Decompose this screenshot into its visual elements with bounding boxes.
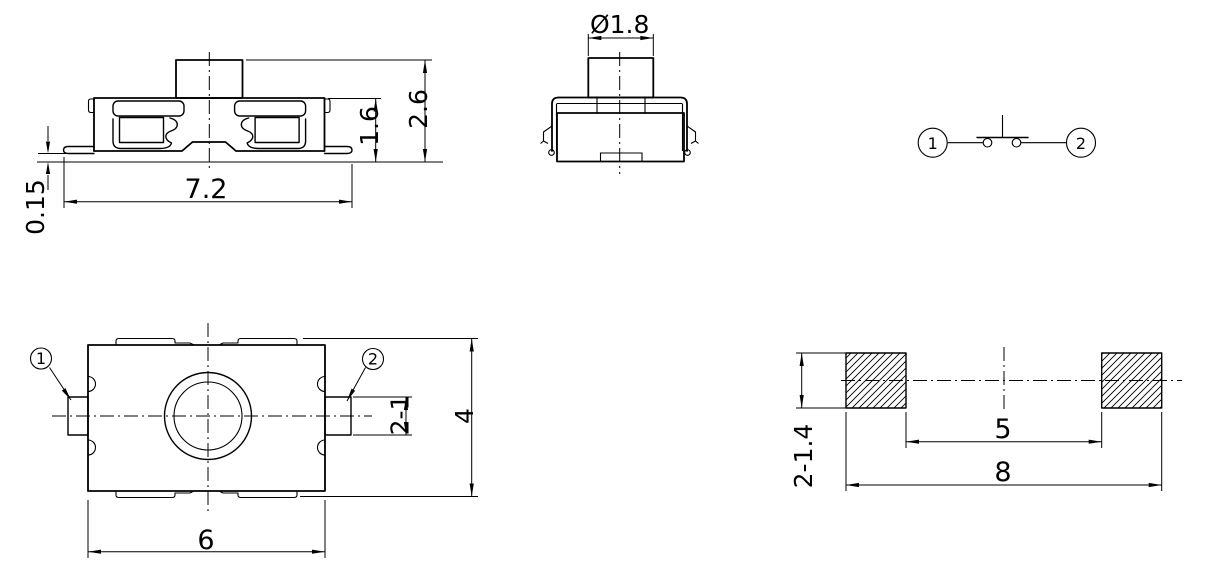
- front-right-contour: [241, 118, 305, 149]
- schematic-terminal-1-label: 1: [928, 134, 938, 153]
- front-right-terminal: [325, 147, 353, 154]
- top-dim-width-label: 6: [197, 525, 214, 556]
- front-left-terminal: [64, 147, 95, 154]
- footprint-dim-inner-arrow-right: [1089, 440, 1102, 444]
- side-button: [588, 58, 653, 98]
- top-dim-height-arrow-top: [470, 339, 474, 352]
- side-right-clip: [687, 126, 699, 144]
- top-tab-bottom-right: [219, 491, 297, 498]
- front-view: 7.2 1.6 2.6 0.15: [21, 52, 443, 235]
- top-dim-terminal-label: 2-1: [386, 395, 415, 436]
- front-dim-standoff-arrow-top: [46, 142, 50, 154]
- footprint-dim-overall-arrow-right: [1149, 483, 1162, 487]
- front-right-window: [255, 118, 299, 143]
- top-terminal-1-leader-arrow: [62, 388, 71, 400]
- top-tab-top-right: [219, 339, 297, 346]
- side-left-clip: [541, 126, 553, 144]
- front-dim-width-arrow-left: [64, 200, 77, 204]
- top-terminal-1-label: 1: [36, 349, 46, 368]
- side-button-pedestal: [597, 98, 645, 114]
- top-dim-width-arrow-left: [88, 550, 101, 554]
- schematic-contact-left: [983, 138, 992, 147]
- front-left-cap: [113, 101, 184, 116]
- schematic-terminal-2-label: 2: [1076, 134, 1086, 153]
- tact-switch-drawing: 7.2 1.6 2.6 0.15: [0, 0, 1213, 580]
- front-dim-total-height-arrow-top: [423, 60, 427, 73]
- front-left-window: [120, 118, 164, 143]
- side-dim-button-label: Ø1.8: [590, 10, 649, 39]
- footprint-dim-pad-ext: [796, 353, 846, 408]
- front-dim-total-height-arrow-bottom: [423, 149, 427, 162]
- front-dim-total-height-label: 2.6: [404, 89, 433, 129]
- footprint-dim-inner-arrow-left: [906, 440, 919, 444]
- top-body-outline: [88, 345, 325, 491]
- circuit-schematic: 1 2: [918, 115, 1095, 157]
- front-left-contour: [113, 118, 177, 149]
- top-tab-bottom-left: [116, 491, 194, 498]
- top-dim-width-arrow-right: [312, 550, 325, 554]
- footprint-dim-overall-label: 8: [994, 457, 1011, 488]
- top-terminal-2-label: 2: [368, 350, 378, 369]
- front-dim-width-arrow-right: [339, 200, 352, 204]
- top-tab-top-left: [116, 339, 194, 346]
- top-dim-height-label: 4: [450, 408, 479, 424]
- side-body-outline: [557, 113, 684, 162]
- front-dim-standoff-label: 0.15: [21, 179, 50, 235]
- schematic-contact-right: [1012, 138, 1021, 147]
- front-right-cap: [235, 101, 306, 116]
- front-dim-standoff-arrow-bottom: [46, 162, 50, 174]
- footprint-dim-pad-label: 2-1.4: [789, 424, 818, 489]
- front-dim-body-height-arrow-bottom: [374, 149, 378, 162]
- footprint-dim-pad-arrow-top: [800, 353, 804, 366]
- footprint-dim-pad-arrow-bottom: [800, 395, 804, 408]
- top-dim-height-arrow-bottom: [470, 484, 474, 497]
- front-dim-width-label: 7.2: [185, 174, 228, 205]
- side-bottom-tab: [601, 153, 643, 162]
- footprint-dim-overall-arrow-left: [846, 483, 859, 487]
- footprint-dim-inner-label: 5: [994, 414, 1011, 445]
- technical-drawing-page: 7.2 1.6 2.6 0.15: [0, 0, 1213, 580]
- side-view: Ø1.8: [541, 10, 699, 174]
- front-dim-body-height-label: 1.6: [355, 106, 384, 146]
- pcb-land-pattern: 5 8 2-1.4: [789, 347, 1182, 491]
- top-view: 1 2 6 4 2-1: [31, 323, 480, 558]
